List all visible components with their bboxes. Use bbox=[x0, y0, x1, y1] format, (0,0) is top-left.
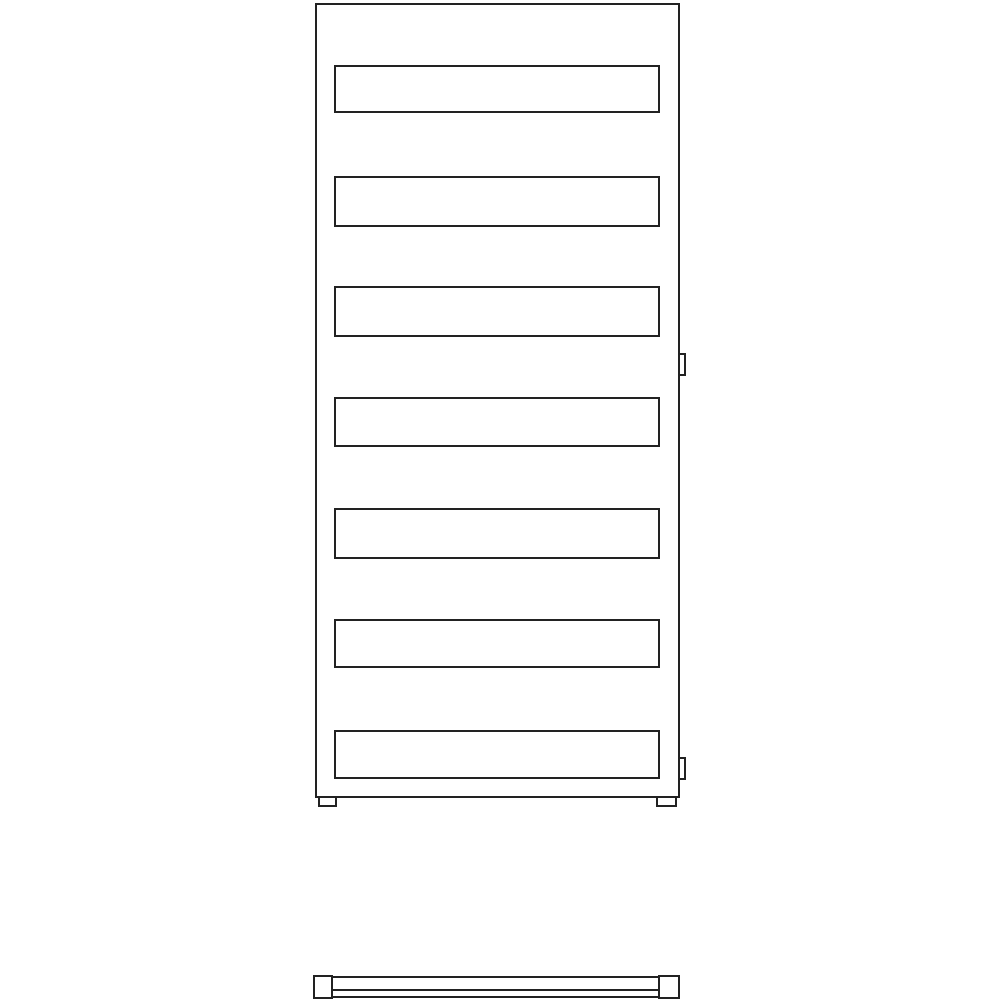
crossbar-endcap-right bbox=[658, 975, 680, 999]
crossbar-endcap-left bbox=[313, 975, 333, 999]
crossbar-tube bbox=[331, 976, 660, 998]
radiator-top-view bbox=[0, 0, 1000, 1000]
crossbar-divider-line bbox=[333, 989, 658, 991]
technical-drawing bbox=[0, 0, 1000, 1000]
